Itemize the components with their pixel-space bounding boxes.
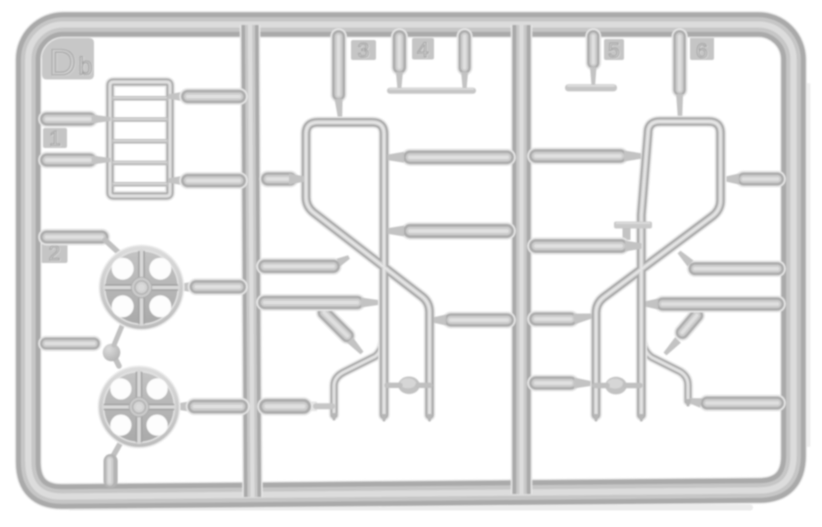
svg-text:6: 6 (696, 40, 708, 63)
svg-text:3: 3 (358, 40, 370, 63)
svg-text:5: 5 (608, 40, 620, 63)
svg-text:4: 4 (417, 39, 429, 62)
svg-text:2: 2 (49, 242, 61, 265)
svg-text:1: 1 (49, 128, 61, 151)
svg-text:b: b (79, 53, 93, 81)
svg-text:D: D (49, 41, 76, 83)
